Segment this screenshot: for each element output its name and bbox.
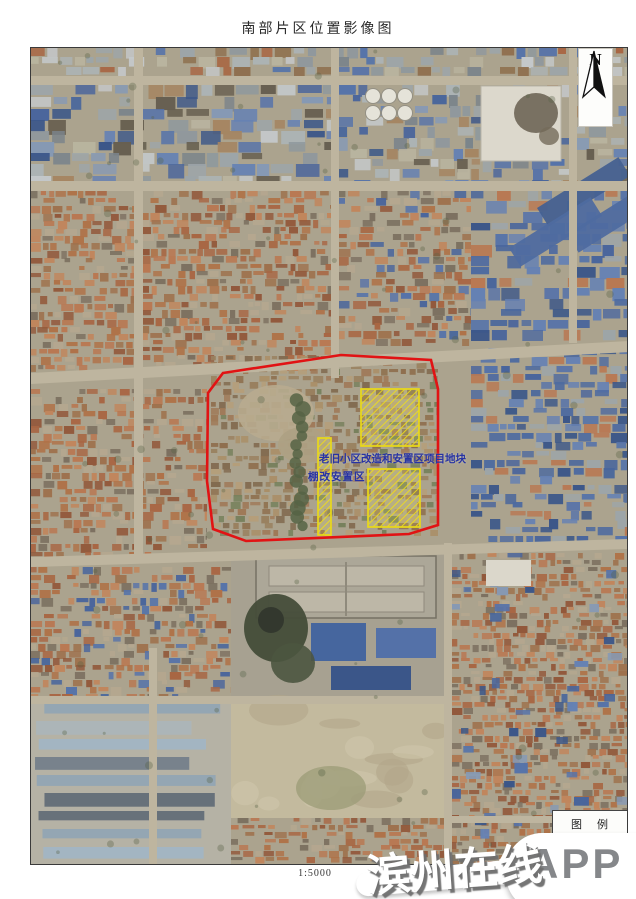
- legend-title: 图 例: [553, 811, 628, 832]
- project-label-line1: 老旧小区改造和安置区项目地块: [319, 451, 466, 466]
- document-page: 南部片区位置影像图 N 老旧小区改造和安置区项目地块 棚改安置区 图 例: [0, 0, 636, 899]
- north-arrow: N: [578, 48, 613, 127]
- page-title: 南部片区位置影像图: [0, 18, 636, 38]
- watermark-site-name: 滨州在线: [364, 828, 544, 899]
- compass-arrow-icon: [579, 49, 609, 101]
- satellite-map: N 老旧小区改造和安置区项目地块 棚改安置区 图 例: [30, 47, 628, 865]
- project-label-line2: 棚改安置区: [308, 469, 366, 484]
